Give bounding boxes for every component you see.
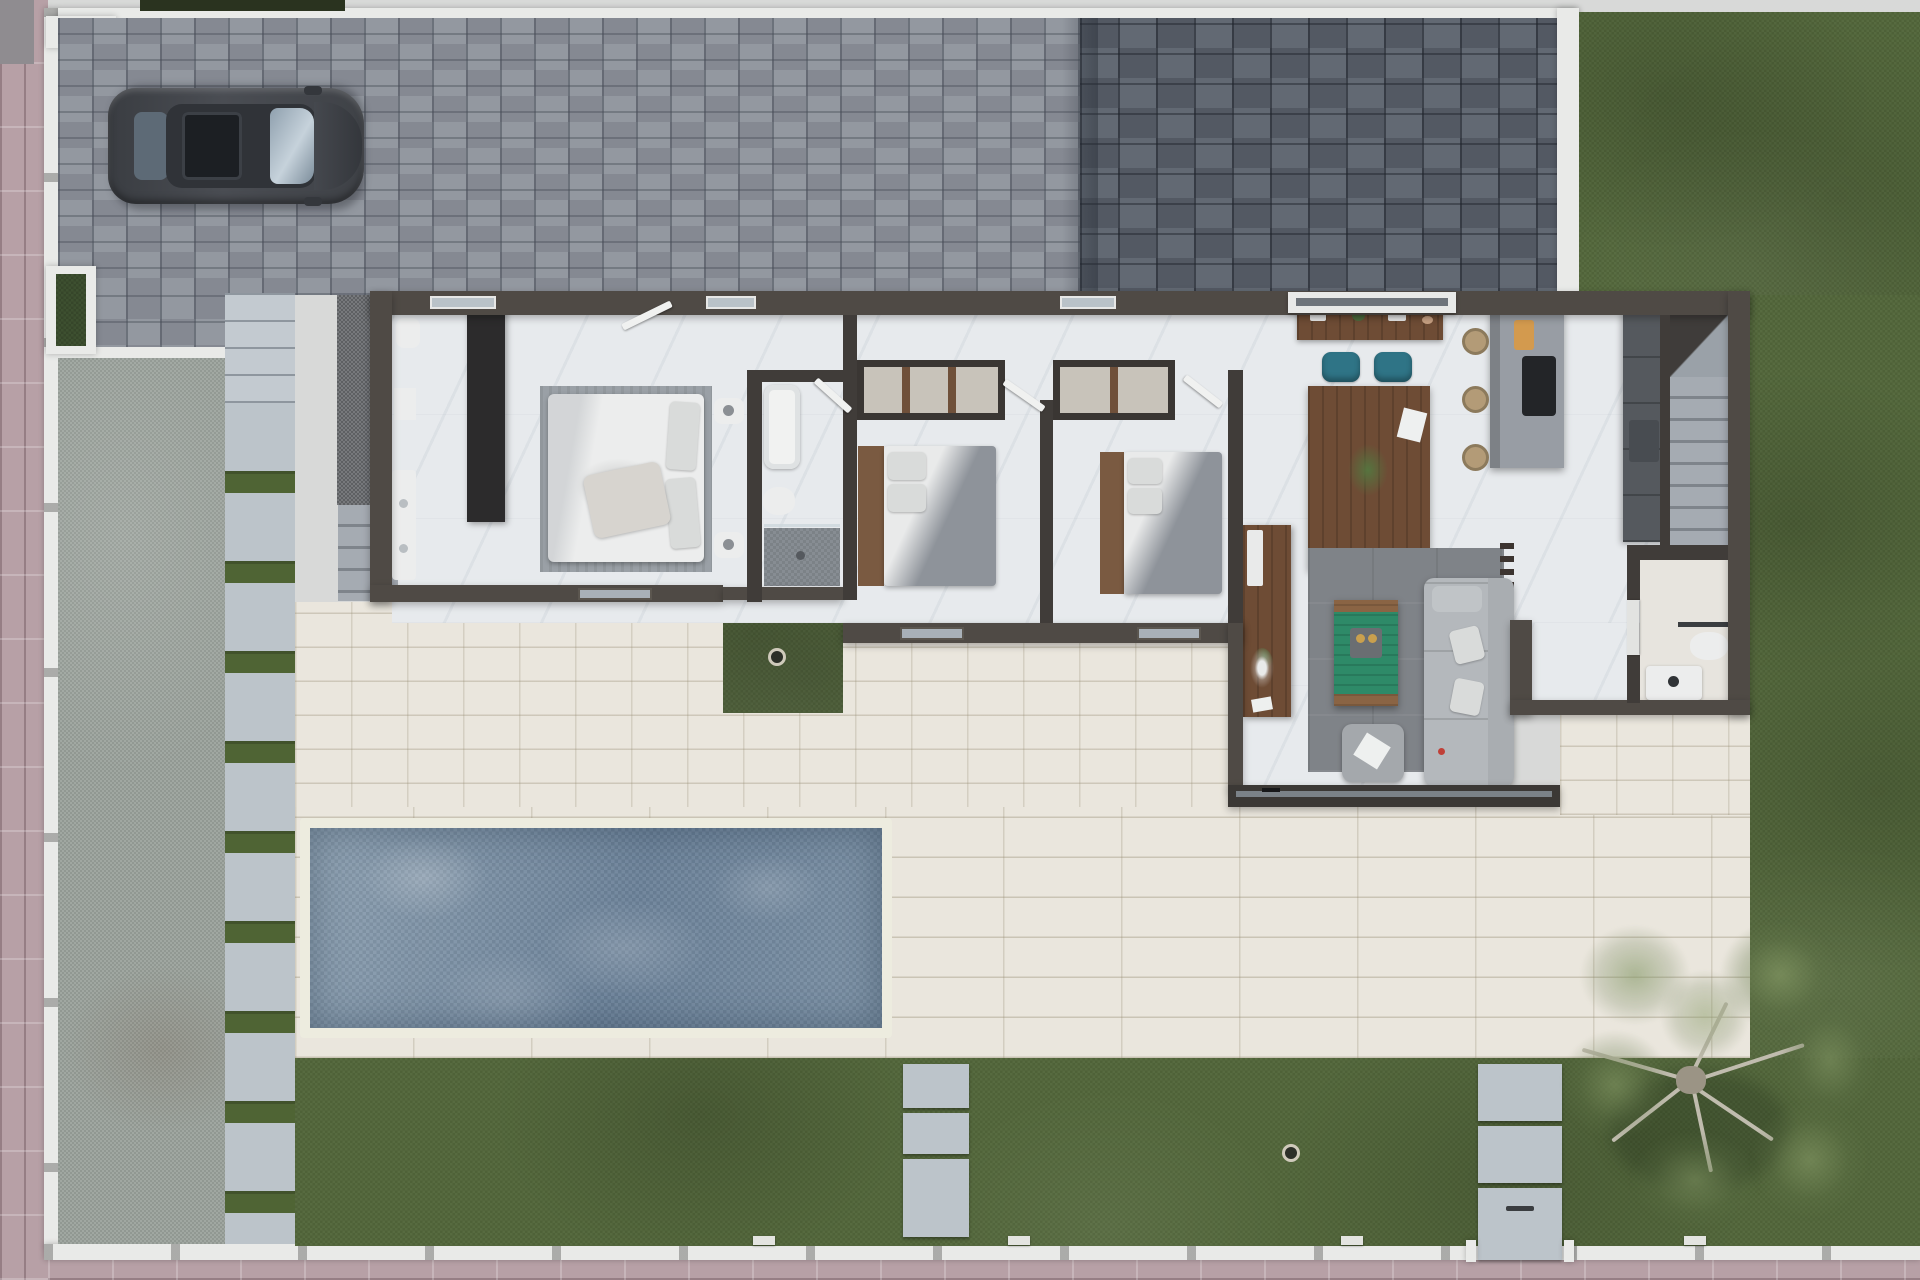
boundary-wall-left [44, 8, 58, 1248]
gate-post-right [1564, 1240, 1574, 1262]
car-sunroof [182, 112, 242, 180]
vanity-sink [399, 544, 408, 553]
lawn-drain [1282, 1144, 1300, 1162]
tray-cup [1368, 634, 1377, 643]
west-gravel-strip [337, 295, 370, 505]
garden-light [1008, 1236, 1030, 1245]
dining-chair [1322, 352, 1360, 382]
sofa-pillow [1449, 677, 1485, 716]
sink-faucet [1668, 676, 1679, 687]
gate-threshold-stone [1478, 1188, 1562, 1260]
wall-bath-east [843, 315, 857, 600]
console-vase-flowers [1250, 648, 1274, 688]
garden-light [753, 1236, 775, 1245]
kitchen-sink [1629, 420, 1659, 462]
tree-foliage [1630, 1130, 1760, 1230]
stair-treads [1670, 377, 1728, 545]
entry-court-pavers [1080, 18, 1557, 295]
parked-car [108, 78, 366, 214]
bedroom2-pillow [888, 484, 926, 512]
garden-light [1341, 1236, 1363, 1245]
boundary-wall-bottom [44, 1244, 1920, 1260]
bar-stool [1462, 386, 1489, 413]
wall-guest-toilet-west2 [1627, 655, 1640, 703]
vanity-sink [399, 499, 408, 508]
entry-door-glass [1296, 298, 1448, 306]
sofa-headrest [1432, 586, 1482, 612]
car-mirror [304, 197, 322, 206]
dining-chair [1374, 352, 1412, 382]
side-gravel-yard [58, 358, 225, 1244]
court-pillar [1557, 8, 1579, 295]
wall-bed2-bed3 [1040, 400, 1053, 623]
tree-trunk [1676, 1066, 1706, 1094]
master-shelf [394, 388, 416, 420]
master-vanity [392, 470, 416, 580]
master-wardrobe [467, 306, 505, 522]
bedroom3-niche-interior [1060, 367, 1168, 413]
stair-landing [1670, 315, 1728, 377]
entry-planter-hedge [56, 274, 86, 346]
bedroom3-pillow [1128, 458, 1162, 484]
bedroom2-headboard [858, 446, 884, 586]
bar-stool [1462, 328, 1489, 355]
window-master-south [578, 588, 652, 600]
guest-toilet-door [1627, 600, 1639, 655]
shower-glass [764, 524, 840, 527]
floor-hall-south [1532, 623, 1627, 703]
garden-tree [1570, 930, 1880, 1240]
paver-blend [1062, 18, 1098, 295]
towel-bar [1678, 622, 1728, 627]
car-windshield [270, 108, 314, 184]
bathtub [764, 385, 800, 469]
shower-drain [796, 551, 805, 560]
front-lawn [1579, 12, 1920, 295]
nightstand-lamp [723, 539, 734, 550]
stepping-stone [903, 1064, 969, 1108]
wall-east [1728, 291, 1750, 715]
wall-master-east [747, 370, 762, 602]
sideboard-bowl [1422, 316, 1433, 324]
stepping-stone [1478, 1126, 1562, 1183]
cutting-board [1514, 320, 1534, 350]
gate-post-left [1466, 1240, 1476, 1262]
bedroom3-pillow [1128, 488, 1162, 514]
window-bedroom3-north [1060, 296, 1116, 309]
stepping-stone [903, 1159, 969, 1237]
stepping-stone [1478, 1064, 1562, 1121]
bedroom2-niche-interior [864, 367, 998, 413]
wall-guest-toilet-north [1627, 545, 1728, 560]
window-master-north [430, 296, 496, 309]
swimming-pool [300, 818, 892, 1038]
sidewalk-left [0, 0, 48, 1280]
sidewalk-corner-tile [0, 0, 34, 64]
grass-inset-drain [768, 648, 786, 666]
tv-panel [1247, 530, 1263, 586]
window-bedroom2-south [900, 627, 964, 640]
island-cooktop [1522, 356, 1556, 416]
window-hall-north [706, 296, 756, 309]
guest-toilet-wc [1690, 632, 1728, 660]
bedroom3-headboard [1100, 452, 1124, 594]
car-mirror [304, 86, 322, 95]
wall-bath-south [723, 587, 843, 600]
nightstand-lamp [723, 405, 734, 416]
hedge-top [140, 0, 345, 11]
wall-bath-north [762, 370, 843, 382]
wall-west [370, 291, 392, 602]
bathroom-toilet [763, 487, 795, 515]
master-toilet [396, 318, 420, 348]
wall-guest-toilet-west [1627, 560, 1640, 600]
master-pillow [665, 477, 701, 549]
tray-cup [1356, 634, 1365, 643]
wall-stairs-west [1660, 315, 1670, 545]
living-slider-handle [1262, 788, 1280, 792]
bedroom2-pillow [888, 452, 926, 480]
sofa-accent [1438, 748, 1445, 755]
floor-plan-render [0, 0, 1920, 1280]
tree-foliage [1660, 970, 1750, 1060]
tree-foliage [1560, 1030, 1670, 1140]
tree-foliage [1750, 1100, 1870, 1220]
gate-latch [1506, 1206, 1534, 1211]
wall-living-west [1228, 620, 1243, 790]
living-slider-glass [1236, 791, 1552, 797]
garden-steps-top [225, 293, 295, 403]
stepping-stone-path [225, 403, 295, 1244]
car-rear-window [134, 112, 168, 180]
window-bedroom3-south [1137, 627, 1201, 640]
coffee-table-tray [1350, 628, 1382, 658]
wall-bed3-east [1228, 370, 1243, 623]
table-plant [1348, 444, 1388, 496]
stepping-stone [903, 1113, 969, 1154]
bar-stool [1462, 444, 1489, 471]
wall-master-south [370, 585, 723, 602]
terrace-alcove [1560, 715, 1750, 815]
master-pillow [666, 401, 701, 471]
sidewalk-bottom [48, 1258, 1920, 1280]
